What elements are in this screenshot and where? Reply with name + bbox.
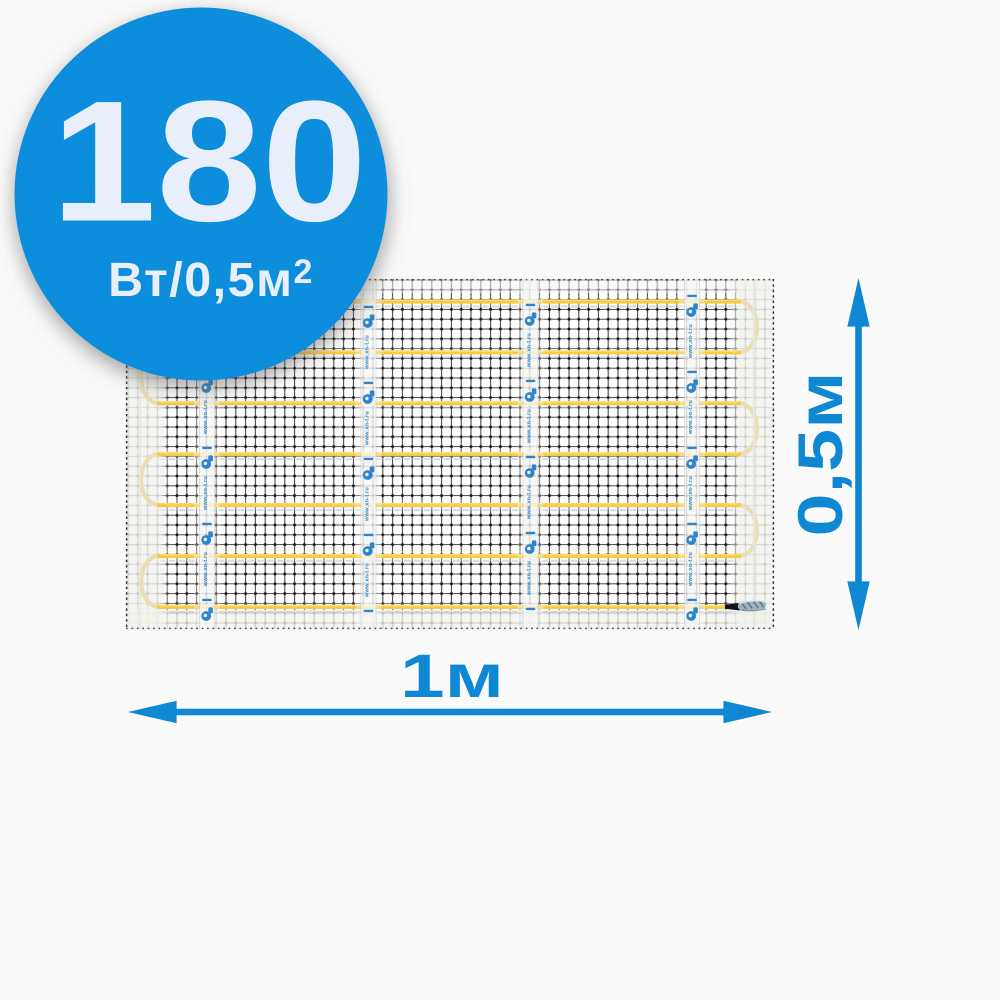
svg-text:www.xn-t.ru: www.xn-t.ru: [688, 476, 694, 511]
svg-text:www.xn-t.ru: www.xn-t.ru: [365, 487, 371, 522]
svg-text:Вт/0,5м2: Вт/0,5м2: [108, 253, 314, 307]
svg-text:www.xn-t.ru: www.xn-t.ru: [688, 400, 694, 435]
svg-text:www.xn-t.ru: www.xn-t.ru: [365, 411, 371, 446]
svg-text:1м: 1м: [400, 642, 504, 710]
svg-text:www.xn-t.ru: www.xn-t.ru: [527, 485, 533, 520]
svg-text:www.xn-t.ru: www.xn-t.ru: [527, 333, 533, 368]
svg-text:www.xn-t.ru: www.xn-t.ru: [688, 324, 694, 359]
svg-text:0,5м: 0,5м: [786, 372, 856, 537]
svg-text:www.xn-t.ru: www.xn-t.ru: [203, 400, 209, 435]
svg-text:www.xn-t.ru: www.xn-t.ru: [527, 561, 533, 596]
svg-text:www.xn-t.ru: www.xn-t.ru: [203, 476, 209, 511]
svg-text:www.xn-t.ru: www.xn-t.ru: [203, 552, 209, 587]
svg-text:www.xn-t.ru: www.xn-t.ru: [365, 335, 371, 370]
svg-text:www.xn-t.ru: www.xn-t.ru: [688, 552, 694, 587]
svg-text:180: 180: [51, 66, 367, 258]
svg-text:www.xn-t.ru: www.xn-t.ru: [365, 563, 371, 598]
svg-text:www.xn-t.ru: www.xn-t.ru: [527, 409, 533, 444]
